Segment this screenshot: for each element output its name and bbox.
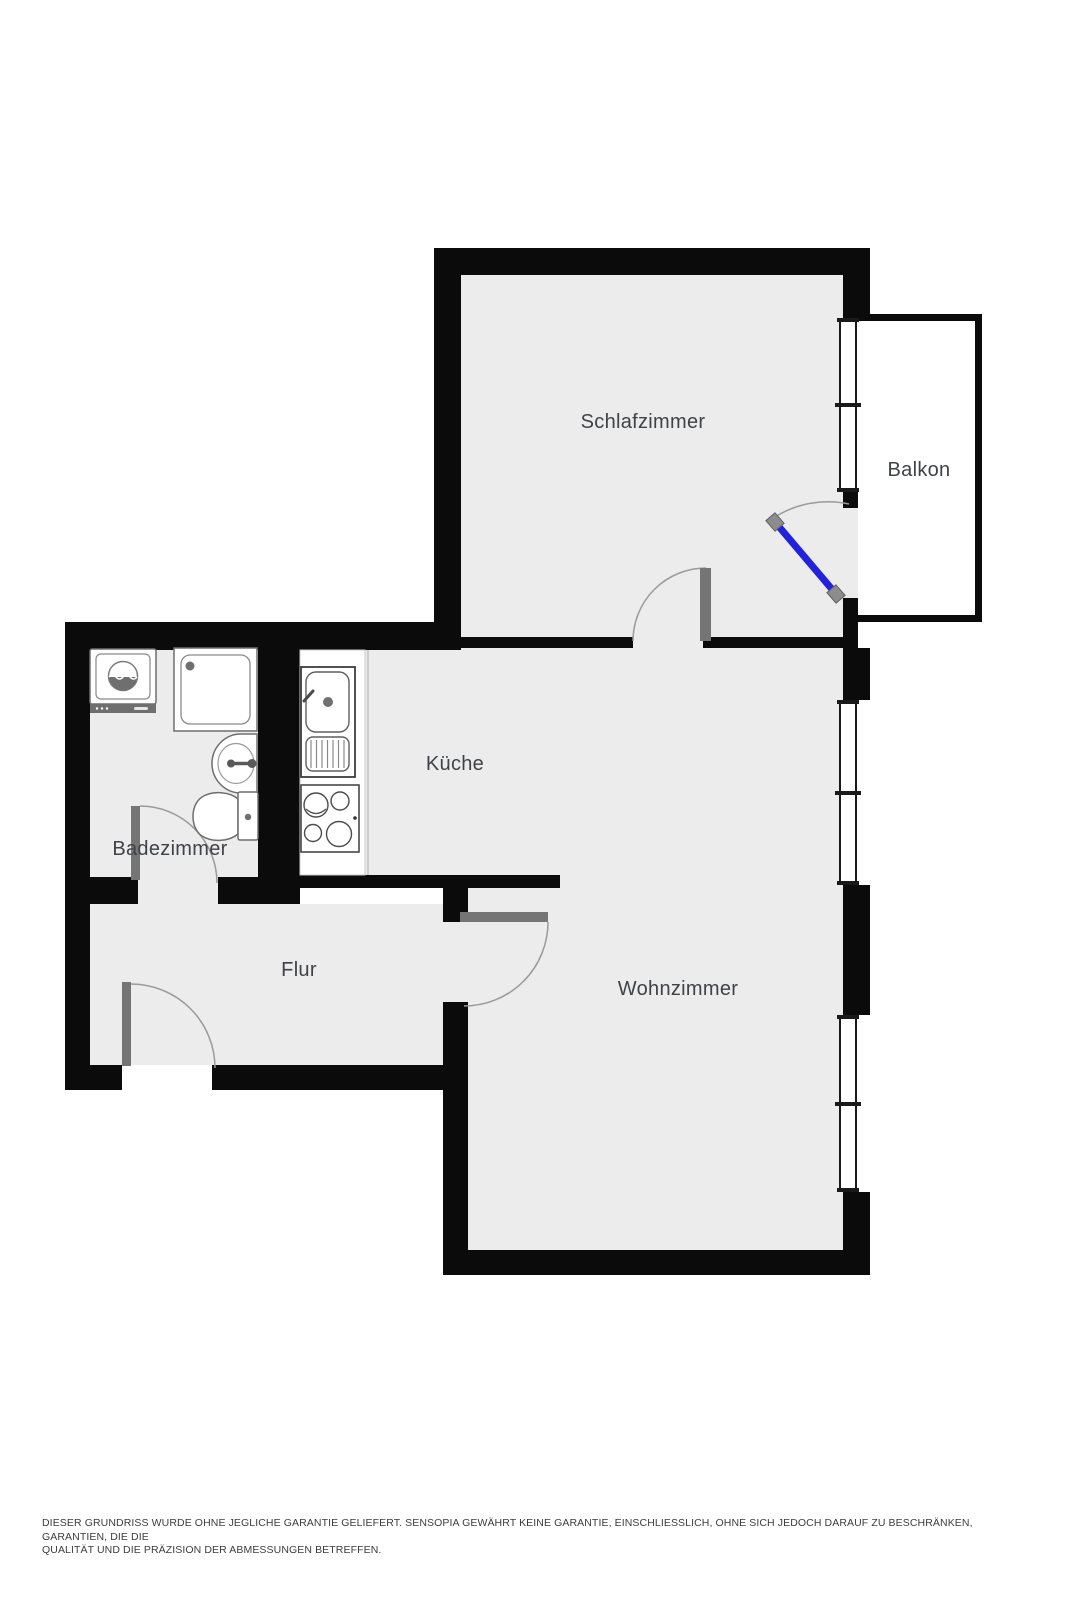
wall (843, 1192, 870, 1275)
floor-schlafzimmer (461, 275, 843, 637)
room-label-badezimmer: Badezimmer (112, 838, 227, 860)
wall (65, 650, 90, 1065)
wall (300, 875, 560, 888)
kitchen-sink-icon (301, 667, 355, 777)
floorplan-canvas: Schlafzimmer Balkon Küche Badezimmer Flu… (0, 0, 1067, 1600)
floor-strip (560, 875, 843, 888)
balcony-wall-bottom (858, 615, 982, 622)
wall (843, 598, 858, 648)
floor-bath-door-gap (138, 877, 218, 904)
washing-machine-icon (90, 649, 156, 713)
floor-kueche-wohnzimmer (300, 648, 843, 875)
wall (443, 1065, 468, 1275)
floor-bedroom-door-gap (633, 637, 703, 648)
wall (843, 490, 858, 508)
wall (434, 275, 461, 650)
wall (843, 275, 870, 318)
disclaimer-line-1: DIESER GRUNDRISS WURDE OHNE JEGLICHE GAR… (42, 1517, 1027, 1544)
floorplan-page: Schlafzimmer Balkon Küche Badezimmer Flu… (0, 0, 1067, 1600)
wall (434, 248, 870, 275)
disclaimer-line-2: QUALITÄT UND DIE PRÄZISION DER ABMESSUNG… (42, 1544, 1027, 1558)
floor-flur-wz-door-gap (443, 922, 468, 1002)
balcony-wall-top (858, 314, 982, 321)
toilet-icon (193, 792, 258, 840)
room-label-schlafzimmer: Schlafzimmer (581, 411, 706, 433)
floor-balcony-door-gap (839, 507, 858, 598)
wall (65, 1065, 122, 1090)
wall (65, 877, 138, 904)
wall (843, 648, 870, 700)
wall (212, 1065, 468, 1090)
room-label-kueche: Küche (426, 753, 484, 775)
wall (843, 885, 870, 1015)
wall (218, 877, 300, 904)
room-label-balkon: Balkon (888, 459, 951, 481)
wall (443, 1250, 870, 1275)
room-label-wohnzimmer: Wohnzimmer (618, 978, 738, 1000)
wall (461, 637, 633, 648)
kitchen-fixtures (300, 650, 368, 875)
floor-wohnzimmer (468, 888, 843, 1250)
room-label-flur: Flur (281, 959, 317, 981)
shower-icon (174, 648, 257, 731)
wall (703, 637, 843, 648)
stove-icon (301, 785, 359, 852)
wall (65, 622, 436, 650)
wall (258, 650, 300, 877)
disclaimer-text: DIESER GRUNDRISS WURDE OHNE JEGLICHE GAR… (42, 1517, 1027, 1558)
balcony-wall-right (975, 314, 982, 622)
wall (443, 1002, 468, 1065)
